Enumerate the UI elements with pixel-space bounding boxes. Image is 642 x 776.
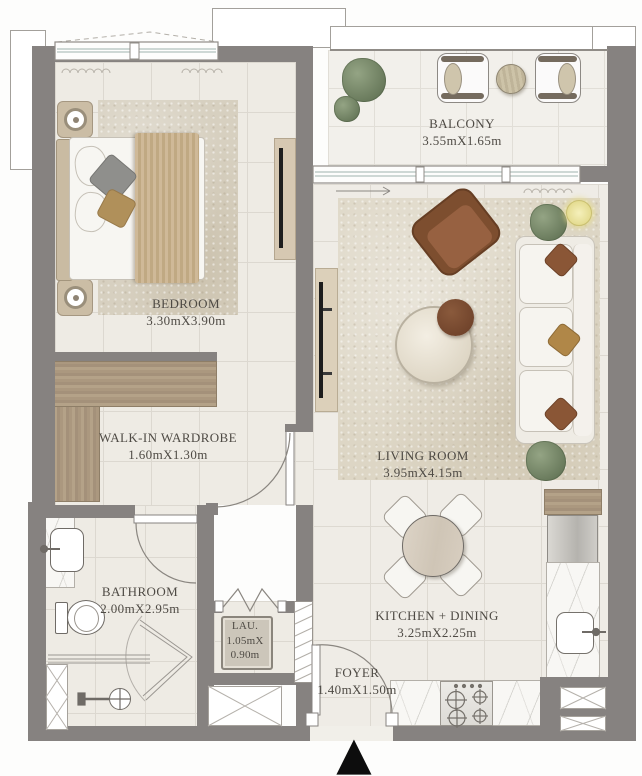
balcony-table: [496, 64, 526, 94]
bedroom-tv-console: [274, 138, 296, 260]
room-name: BATHROOM: [70, 583, 210, 600]
pouf: [437, 299, 474, 336]
wall: [578, 166, 608, 182]
wall: [296, 505, 313, 603]
chair-cushion: [444, 63, 462, 95]
room-name: LAU.: [221, 619, 269, 634]
room-dimensions: 3.25mX2.25m: [357, 624, 517, 641]
shower-head-icon: [109, 688, 131, 710]
tv-bracket: [323, 372, 332, 375]
service-shaft: [46, 664, 68, 730]
balcony-chair: [535, 53, 581, 103]
room-label-laundry: LAU. 1.05mX 0.90m: [221, 619, 269, 663]
bathroom-sink: [50, 528, 84, 572]
room-label-bedroom: BEDROOM 3.30mX3.90m: [116, 295, 256, 329]
plant-icon: [530, 204, 567, 241]
wall: [28, 726, 310, 741]
service-shaft: [208, 686, 282, 726]
chair-trim: [538, 93, 577, 99]
room-dimensions: 3.55mX1.65m: [382, 132, 542, 149]
living-tv-icon: [319, 282, 323, 398]
stove: [440, 681, 493, 726]
bed-blanket: [135, 133, 199, 283]
room-label-living-room: LIVING ROOM 3.95mX4.15m: [343, 447, 503, 481]
wall: [45, 505, 135, 518]
room-label-balcony: BALCONY 3.55mX1.65m: [382, 115, 542, 149]
chair-trim: [538, 56, 577, 62]
floor-lamp-icon: [566, 200, 592, 226]
wall: [28, 502, 46, 741]
table-lamp-icon: [64, 286, 87, 309]
bedroom-tv-icon: [279, 148, 283, 248]
kitchen-sink: [556, 612, 594, 654]
plant-icon: [334, 96, 360, 122]
dining-table: [402, 515, 464, 577]
wardrobe-cabinet-top: [53, 361, 217, 407]
ledge-balcony-top: [330, 26, 608, 50]
room-name: WALK-IN WARDROBE: [88, 429, 248, 446]
room-dimensions: 0.90m: [221, 648, 269, 663]
ledge-top-box: [212, 8, 346, 48]
room-dimensions: 1.05mX: [221, 634, 269, 649]
fridge: [547, 515, 598, 563]
room-label-kitchen-dining: KITCHEN + DINING 3.25mX2.25m: [357, 607, 517, 641]
wall: [214, 601, 222, 613]
wall: [197, 673, 302, 685]
room-dimensions: 1.60mX1.30m: [88, 446, 248, 463]
room-label-foyer: FOYER 1.40mX1.50m: [297, 664, 417, 698]
chair-trim: [441, 93, 484, 99]
wall: [32, 46, 55, 506]
room-label-bathroom: BATHROOM 2.00mX2.95m: [70, 583, 210, 617]
room-name: KITCHEN + DINING: [357, 607, 517, 624]
room-name: LIVING ROOM: [343, 447, 503, 464]
table-lamp-icon: [64, 108, 87, 131]
service-shaft: [560, 716, 606, 731]
room-dimensions: 1.40mX1.50m: [297, 681, 417, 698]
room-label-walk-in-wardrobe: WALK-IN WARDROBE 1.60mX1.30m: [88, 429, 248, 463]
wall: [55, 352, 217, 361]
room-dimensions: 2.00mX2.95m: [70, 600, 210, 617]
wall: [296, 46, 313, 432]
floor-plan: BEDROOM 3.30mX3.90m WALK-IN WARDROBE 1.6…: [0, 0, 642, 776]
room-dimensions: 3.95mX4.15m: [343, 464, 503, 481]
chair-trim: [441, 56, 484, 62]
room-dimensions: 3.30mX3.90m: [116, 312, 256, 329]
chair-cushion: [558, 63, 576, 95]
room-name: FOYER: [297, 664, 417, 681]
wall: [46, 46, 313, 62]
room-name: BEDROOM: [116, 295, 256, 312]
entrance-arrow-icon: ▲: [326, 730, 382, 776]
balcony-chair: [437, 53, 489, 103]
plant-icon: [526, 441, 566, 481]
fridge-top-cabinet: [544, 489, 602, 515]
service-shaft: [560, 687, 606, 709]
wall: [608, 178, 636, 741]
room-name: BALCONY: [382, 115, 542, 132]
tv-bracket: [323, 308, 332, 311]
wall: [607, 46, 636, 180]
